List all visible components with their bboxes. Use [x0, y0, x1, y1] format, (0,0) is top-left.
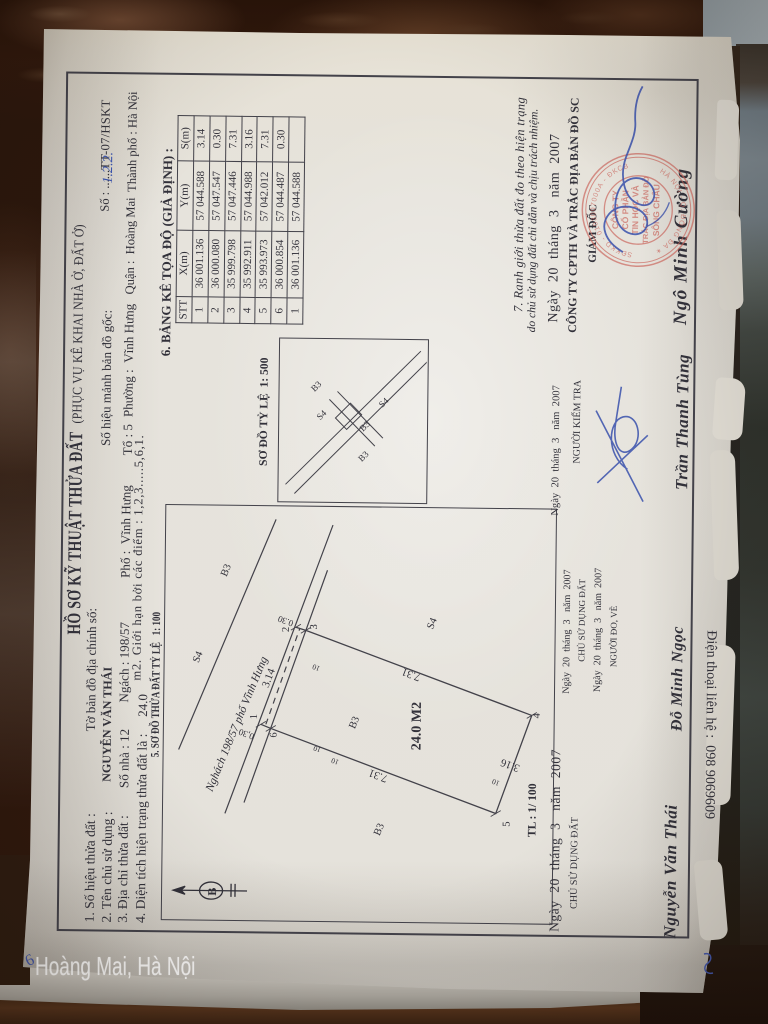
- svg-text:S4: S4: [315, 408, 329, 422]
- svg-text:4: 4: [532, 712, 543, 718]
- svg-text:10: 10: [330, 756, 340, 767]
- svg-text:24.0 M2: 24.0 M2: [408, 702, 424, 751]
- svg-text:3: 3: [309, 624, 320, 629]
- svg-text:10: 10: [490, 777, 500, 788]
- svg-text:B3: B3: [356, 449, 371, 464]
- svg-text:10: 10: [311, 662, 321, 673]
- svg-text:B3: B3: [372, 822, 387, 838]
- svg-text:6: 6: [269, 732, 280, 737]
- svg-text:B3: B3: [347, 715, 362, 731]
- svg-text:B: B: [205, 888, 219, 896]
- svg-text:7.31: 7.31: [400, 665, 422, 683]
- svg-text:S4: S4: [377, 395, 391, 409]
- svg-text:S4: S4: [425, 616, 440, 631]
- svg-text:1: 1: [249, 714, 260, 719]
- svg-text:B3: B3: [309, 379, 324, 394]
- svg-text:S4: S4: [191, 649, 206, 664]
- svg-text:0.30: 0.30: [276, 613, 295, 628]
- svg-text:7.31: 7.31: [367, 766, 389, 784]
- svg-text:5: 5: [502, 821, 513, 826]
- svg-text:3.16: 3.16: [499, 756, 522, 774]
- svg-text:B3: B3: [219, 563, 234, 579]
